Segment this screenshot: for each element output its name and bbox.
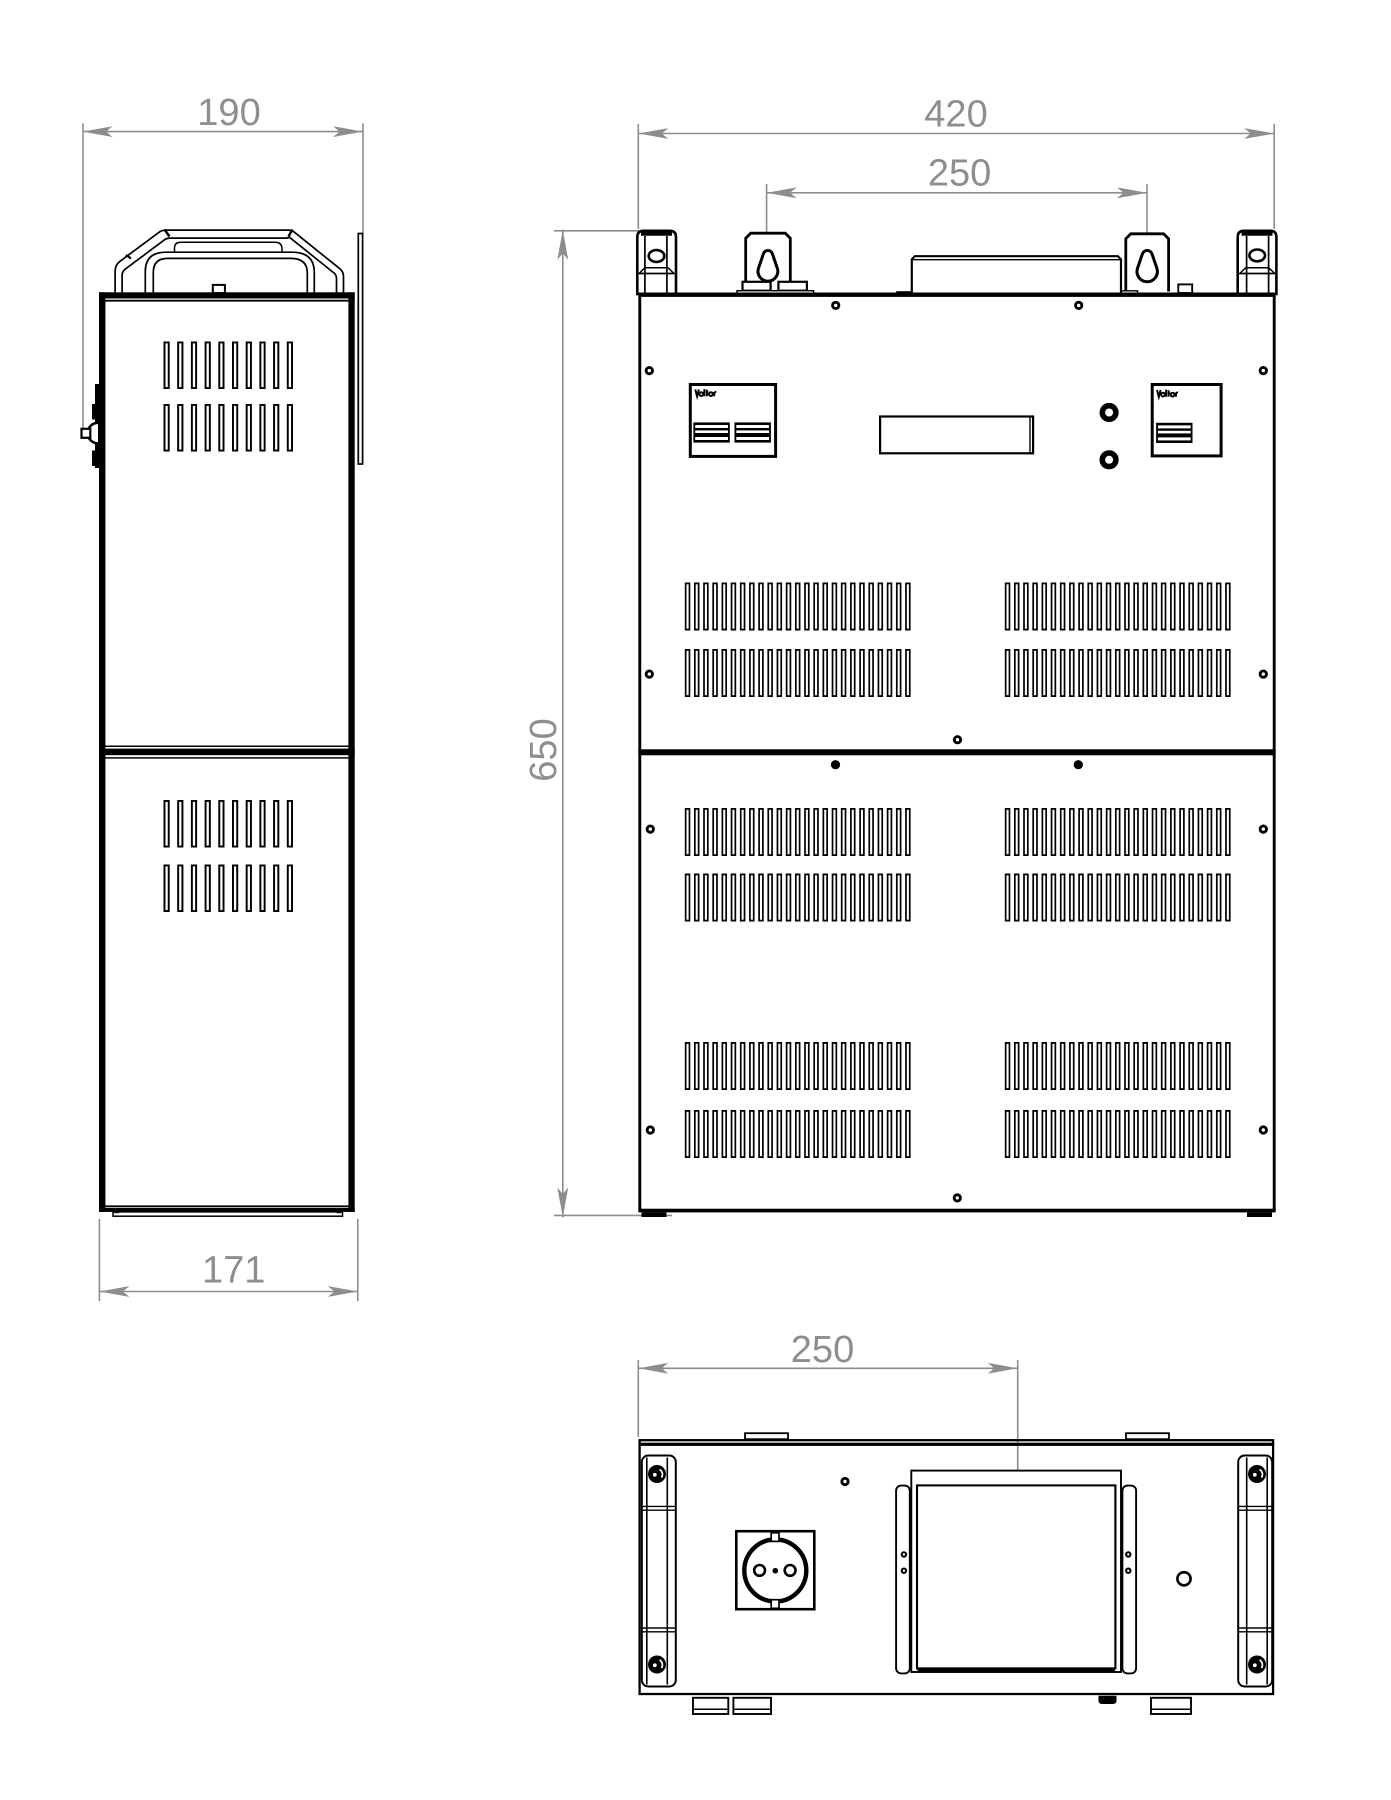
svg-text:420: 420 [924,94,987,136]
svg-text:650: 650 [523,718,565,781]
svg-text:250: 250 [791,1329,854,1371]
svg-text:190: 190 [197,92,260,134]
svg-text:250: 250 [928,153,991,195]
svg-text:171: 171 [202,1250,265,1292]
